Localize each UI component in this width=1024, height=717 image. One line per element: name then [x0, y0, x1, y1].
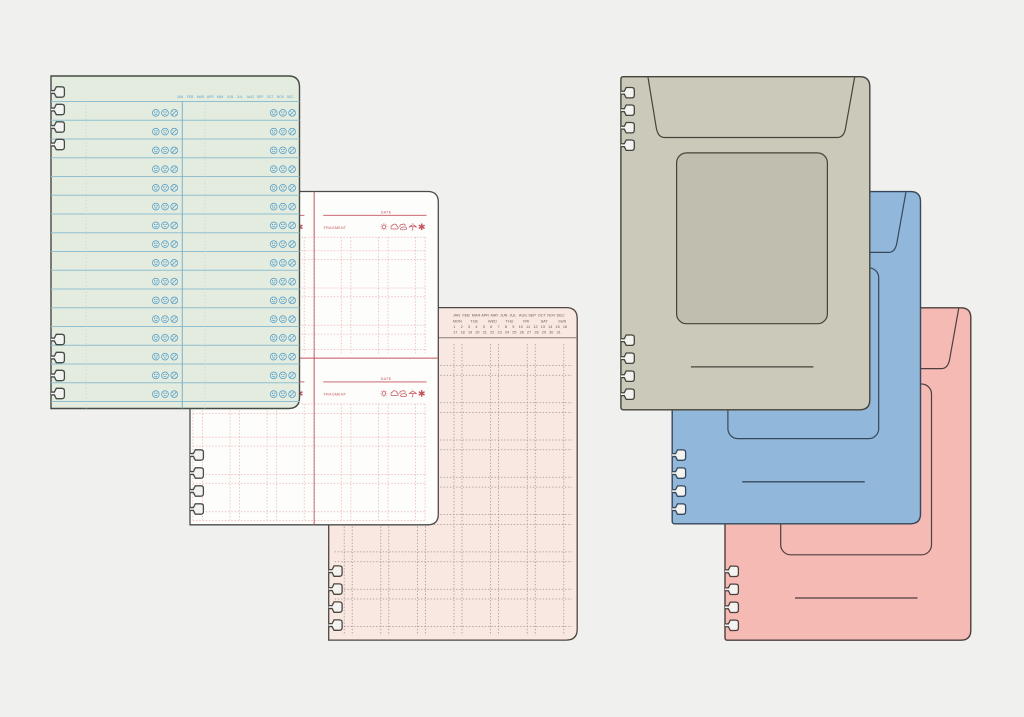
svg-text:JUL: JUL [509, 314, 516, 318]
svg-text:THU: THU [506, 319, 514, 323]
svg-text:JUN: JUN [227, 95, 234, 99]
svg-text:DEC: DEC [557, 314, 565, 318]
svg-text:20: 20 [475, 330, 479, 334]
svg-text:.: . [410, 210, 411, 214]
svg-text:JAN: JAN [177, 95, 184, 99]
svg-text:9: 9 [512, 325, 514, 329]
svg-text:MAY: MAY [217, 95, 225, 99]
svg-text:31: 31 [557, 330, 561, 334]
svg-text:FEB: FEB [187, 95, 194, 99]
svg-text:12: 12 [533, 325, 537, 329]
svg-text:APR: APR [481, 314, 489, 318]
svg-text:.: . [410, 377, 411, 381]
svg-text:SAT: SAT [541, 319, 549, 323]
svg-text:26: 26 [520, 330, 524, 334]
svg-text:2: 2 [461, 325, 463, 329]
svg-text:FRI: FRI [523, 319, 529, 323]
svg-text:DEC.: DEC. [287, 95, 295, 99]
svg-text:23: 23 [497, 330, 501, 334]
svg-text:18: 18 [461, 330, 465, 334]
svg-text:15: 15 [556, 325, 560, 329]
svg-text:AUG: AUG [519, 314, 527, 318]
svg-text:SEP: SEP [257, 95, 265, 99]
svg-text:APR: APR [207, 95, 215, 99]
svg-text:5: 5 [483, 325, 485, 329]
svg-text:JUL: JUL [237, 95, 243, 99]
svg-text:SEP: SEP [528, 314, 536, 318]
svg-text:4: 4 [475, 325, 477, 329]
svg-text:3: 3 [468, 325, 470, 329]
svg-text:OCT: OCT [267, 95, 274, 99]
svg-text:6: 6 [490, 325, 492, 329]
svg-text:8: 8 [505, 325, 507, 329]
svg-text:FRAGMENT: FRAGMENT [324, 226, 347, 230]
svg-text:22: 22 [490, 330, 494, 334]
svg-text:JUN: JUN [500, 314, 508, 318]
svg-text:24: 24 [505, 330, 509, 334]
svg-text:17: 17 [453, 330, 457, 334]
svg-text:.: . [397, 210, 398, 214]
svg-text:11: 11 [526, 325, 530, 329]
svg-text:MAY: MAY [491, 314, 499, 318]
svg-text:MAR: MAR [472, 314, 481, 318]
svg-text:7: 7 [498, 325, 500, 329]
svg-text:TUE: TUE [470, 319, 478, 323]
svg-text:AUG: AUG [247, 95, 255, 99]
svg-text:13: 13 [541, 325, 545, 329]
svg-text:29: 29 [542, 330, 546, 334]
svg-text:28: 28 [534, 330, 538, 334]
svg-text:MAR: MAR [197, 95, 205, 99]
svg-text:NOV: NOV [547, 314, 556, 318]
svg-text:16: 16 [563, 325, 567, 329]
svg-text:1: 1 [453, 325, 455, 329]
svg-text:25: 25 [512, 330, 516, 334]
svg-text:FEB: FEB [462, 314, 470, 318]
svg-text:30: 30 [549, 330, 553, 334]
svg-text:WED: WED [488, 319, 497, 323]
svg-text:19: 19 [468, 330, 472, 334]
svg-text:10: 10 [519, 325, 523, 329]
svg-text:MON: MON [453, 319, 462, 323]
svg-text:21: 21 [483, 330, 487, 334]
svg-text:DATE: DATE [381, 377, 392, 381]
svg-text:DATE: DATE [381, 210, 392, 214]
svg-text:FRAGMENT: FRAGMENT [324, 392, 347, 396]
svg-text:SUN: SUN [558, 319, 566, 323]
svg-text:NOV: NOV [277, 95, 285, 99]
svg-text:.: . [397, 377, 398, 381]
svg-text:27: 27 [527, 330, 531, 334]
svg-text:JAN: JAN [453, 314, 460, 318]
svg-text:14: 14 [548, 325, 552, 329]
svg-text:OCT: OCT [538, 314, 547, 318]
